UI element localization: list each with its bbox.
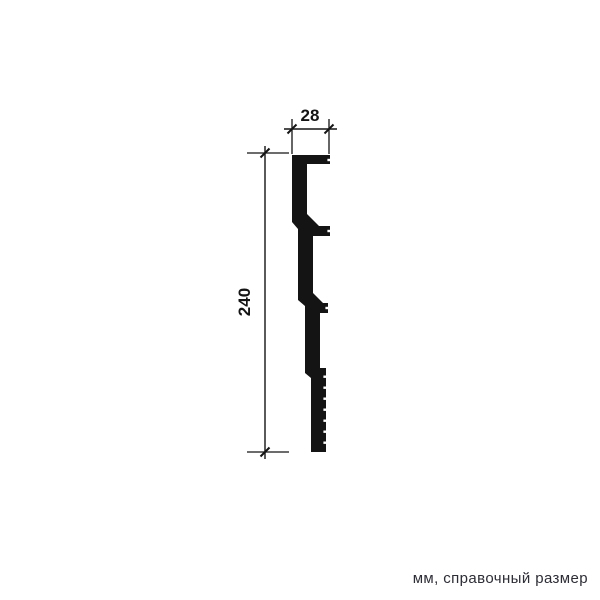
technical-drawing-page: 28 240 мм, справочный размер [0, 0, 600, 600]
molding-profile-shape [292, 155, 331, 452]
profile-drawing: 28 240 [0, 0, 600, 600]
width-dimension-value: 28 [301, 106, 320, 125]
units-reference-note: мм, справочный размер [413, 570, 588, 587]
height-dimension-value: 240 [235, 288, 254, 316]
